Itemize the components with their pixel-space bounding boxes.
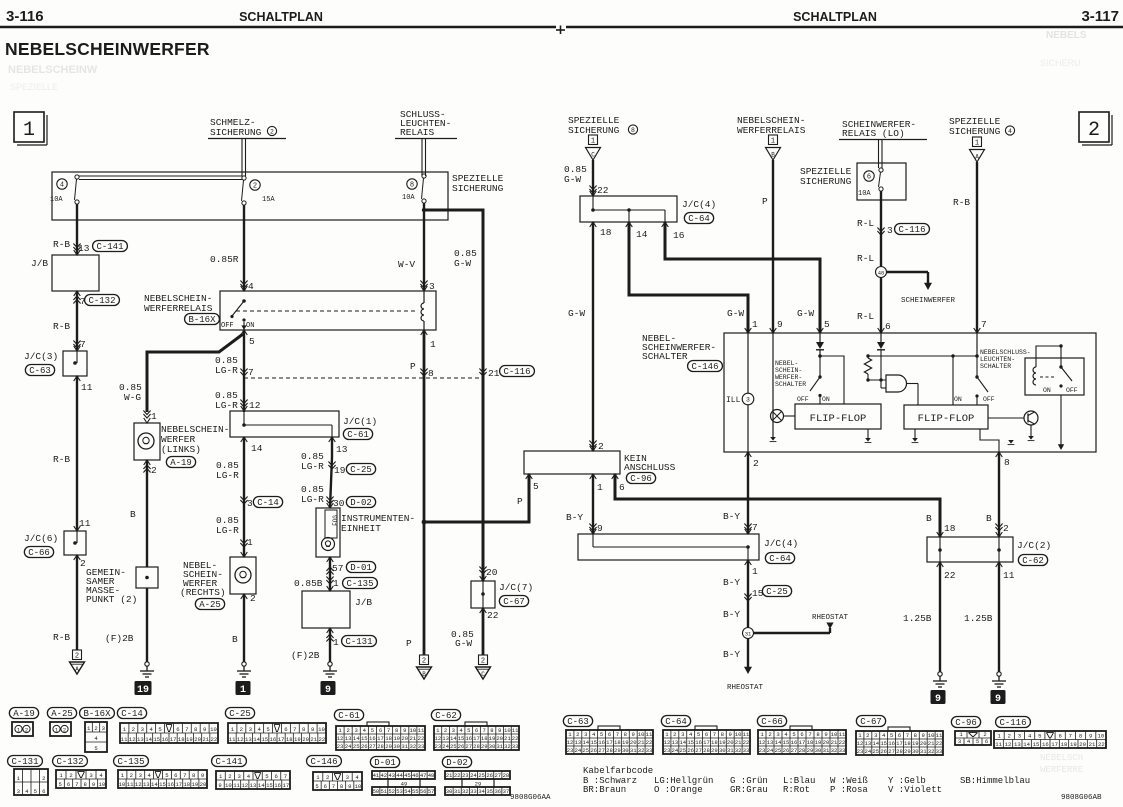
svg-text:8: 8 — [1079, 733, 1082, 740]
svg-text:BR:Braun: BR:Braun — [583, 785, 626, 795]
svg-text:5: 5 — [158, 726, 161, 733]
svg-text:7: 7 — [483, 727, 486, 734]
svg-text:20: 20 — [401, 735, 408, 742]
svg-text:32: 32 — [462, 788, 469, 795]
svg-text:OFF: OFF — [983, 396, 995, 403]
svg-text:19: 19 — [719, 739, 726, 746]
svg-text:24: 24 — [470, 772, 477, 779]
svg-text:11: 11 — [646, 731, 653, 738]
svg-text:16: 16 — [274, 782, 281, 789]
svg-text:17: 17 — [170, 736, 177, 743]
svg-text:(F)2B: (F)2B — [291, 650, 320, 661]
svg-text:6: 6 — [800, 731, 803, 738]
svg-text:22: 22 — [944, 570, 956, 581]
svg-text:C-14: C-14 — [257, 498, 279, 508]
svg-text:31: 31 — [630, 747, 637, 754]
svg-text:3: 3 — [584, 731, 587, 738]
svg-text:34: 34 — [478, 788, 485, 795]
svg-text:1: 1 — [752, 566, 758, 577]
svg-text:50: 50 — [373, 788, 380, 795]
svg-text:RELAIS (LO): RELAIS (LO) — [842, 128, 905, 139]
svg-text:1: 1 — [333, 578, 339, 589]
svg-text:14: 14 — [151, 781, 158, 788]
svg-text:SCHALTER: SCHALTER — [642, 351, 688, 362]
svg-text:LG-R: LG-R — [215, 400, 238, 411]
svg-text:24: 24 — [672, 747, 679, 754]
svg-text:EINHEIT: EINHEIT — [341, 523, 381, 534]
svg-text:19: 19 — [815, 739, 822, 746]
svg-text:15: 15 — [361, 735, 368, 742]
svg-text:26: 26 — [361, 743, 368, 750]
svg-text:10: 10 — [225, 782, 232, 789]
svg-text:9: 9 — [995, 694, 1001, 705]
svg-text:C-63: C-63 — [29, 366, 51, 376]
svg-text:11: 11 — [229, 736, 236, 743]
svg-text:WERFER-: WERFER- — [775, 374, 802, 381]
svg-text:20: 20 — [1079, 741, 1086, 748]
svg-text:NEBEL-: NEBEL- — [775, 360, 798, 367]
svg-text:1: 1 — [240, 685, 246, 696]
svg-text:11: 11 — [233, 782, 240, 789]
svg-text:24: 24 — [575, 747, 582, 754]
svg-text:3: 3 — [681, 731, 684, 738]
svg-text:5: 5 — [94, 745, 97, 752]
svg-text:A-25: A-25 — [51, 709, 73, 719]
svg-text:B: B — [232, 634, 238, 645]
svg-text:15: 15 — [458, 735, 465, 742]
svg-text:W-G: W-G — [124, 392, 141, 403]
svg-text:SB:Himmelblau: SB:Himmelblau — [960, 776, 1030, 786]
svg-text:GR:Grau: GR:Grau — [730, 785, 768, 795]
svg-text:26: 26 — [458, 743, 465, 750]
svg-text:B: B — [926, 513, 932, 524]
svg-text:3: 3 — [429, 281, 435, 292]
svg-text:ON: ON — [822, 396, 830, 403]
svg-text:9: 9 — [729, 731, 732, 738]
svg-text:8: 8 — [83, 781, 86, 788]
svg-text:14: 14 — [636, 229, 648, 240]
svg-text:3: 3 — [89, 772, 92, 779]
svg-text:C-116: C-116 — [898, 225, 925, 235]
svg-text:27: 27 — [465, 743, 472, 750]
svg-text:12: 12 — [435, 735, 442, 742]
svg-text:R:Rot: R:Rot — [783, 785, 810, 795]
svg-text:5: 5 — [697, 731, 700, 738]
svg-text:7: 7 — [713, 731, 716, 738]
svg-text:5: 5 — [34, 788, 37, 795]
svg-text:11: 11 — [79, 518, 91, 529]
svg-text:10: 10 — [210, 726, 217, 733]
svg-text:LG-R: LG-R — [215, 365, 238, 376]
svg-text:8: 8 — [395, 727, 398, 734]
svg-text:B-16X: B-16X — [188, 315, 216, 325]
svg-text:8: 8 — [816, 731, 819, 738]
svg-text:12: 12 — [337, 735, 344, 742]
svg-text:30: 30 — [719, 747, 726, 754]
svg-text:21: 21 — [1089, 741, 1096, 748]
svg-text:ON: ON — [246, 322, 254, 330]
svg-text:C-62: C-62 — [435, 711, 457, 721]
svg-text:29: 29 — [481, 743, 488, 750]
svg-text:SICHERUNG: SICHERUNG — [949, 126, 1001, 137]
svg-text:9: 9 — [935, 694, 941, 705]
svg-text:B: B — [130, 509, 136, 520]
svg-text:3: 3 — [887, 225, 893, 236]
svg-text:R-B: R-B — [953, 197, 970, 208]
svg-text:2: 2 — [481, 657, 485, 665]
svg-text:C-67: C-67 — [860, 717, 882, 727]
svg-text:OFF: OFF — [1066, 387, 1078, 394]
svg-text:20: 20 — [823, 739, 830, 746]
svg-text:3: 3 — [346, 774, 349, 781]
svg-text:12: 12 — [664, 739, 671, 746]
svg-text:A: A — [75, 666, 79, 673]
svg-text:16: 16 — [167, 781, 174, 788]
svg-text:(RECHTS): (RECHTS) — [180, 587, 226, 598]
svg-text:26: 26 — [590, 747, 597, 754]
svg-text:9: 9 — [498, 727, 501, 734]
svg-text:12: 12 — [237, 736, 244, 743]
svg-text:33: 33 — [418, 743, 425, 750]
svg-text:9808G06AA: 9808G06AA — [510, 794, 551, 802]
svg-text:WERFERRELAIS: WERFERRELAIS — [144, 303, 213, 314]
svg-text:2: 2 — [63, 727, 66, 734]
svg-text:14: 14 — [679, 739, 686, 746]
svg-text:8: 8 — [194, 726, 197, 733]
svg-text:SCHALTER: SCHALTER — [775, 381, 806, 388]
svg-text:6: 6 — [284, 726, 287, 733]
svg-text:3: 3 — [237, 773, 240, 780]
svg-text:G-W: G-W — [454, 258, 471, 269]
svg-text:LG-R: LG-R — [301, 494, 324, 505]
svg-text:13: 13 — [865, 740, 872, 747]
svg-text:5: 5 — [371, 727, 374, 734]
svg-text:29: 29 — [711, 747, 718, 754]
svg-text:9: 9 — [218, 782, 221, 789]
svg-text:12: 12 — [129, 736, 136, 743]
svg-text:31: 31 — [727, 747, 734, 754]
svg-text:3: 3 — [746, 396, 750, 403]
svg-text:27: 27 — [598, 747, 605, 754]
svg-text:J/C(4): J/C(4) — [764, 538, 798, 549]
svg-text:23: 23 — [759, 747, 766, 754]
svg-text:25: 25 — [353, 743, 360, 750]
svg-text:10: 10 — [928, 732, 935, 739]
svg-text:3: 3 — [141, 726, 144, 733]
svg-text:28: 28 — [606, 747, 613, 754]
svg-text:31: 31 — [496, 743, 503, 750]
svg-text:10: 10 — [831, 731, 838, 738]
svg-text:27: 27 — [888, 748, 895, 755]
svg-text:11: 11 — [81, 382, 93, 393]
svg-text:G-W: G-W — [797, 308, 814, 319]
svg-text:18: 18 — [600, 227, 612, 238]
svg-text:C-61: C-61 — [338, 711, 360, 721]
svg-text:6: 6 — [475, 727, 478, 734]
svg-text:C-141: C-141 — [215, 757, 242, 767]
svg-text:SICHERUNG: SICHERUNG — [800, 176, 852, 187]
svg-text:B: B — [771, 152, 775, 159]
svg-text:SCHEINWERFER: SCHEINWERFER — [901, 297, 956, 305]
svg-text:C-132: C-132 — [88, 296, 115, 306]
svg-text:4: 4 — [248, 281, 254, 292]
svg-text:21: 21 — [446, 772, 453, 779]
svg-text:7: 7 — [752, 522, 758, 533]
svg-text:22: 22 — [936, 740, 943, 747]
svg-text:J/B: J/B — [355, 597, 372, 608]
svg-text:22: 22 — [211, 736, 218, 743]
svg-text:17: 17 — [175, 781, 182, 788]
svg-text:3: 3 — [355, 727, 358, 734]
svg-text:3: 3 — [17, 788, 20, 795]
svg-text:9: 9 — [311, 726, 314, 733]
svg-text:C-116: C-116 — [999, 718, 1026, 728]
svg-text:22: 22 — [487, 610, 499, 621]
svg-text:G-W: G-W — [727, 308, 744, 319]
svg-text:10: 10 — [318, 726, 325, 733]
svg-text:2: 2 — [444, 727, 447, 734]
svg-text:B: B — [422, 671, 426, 678]
svg-text:P: P — [517, 496, 523, 507]
svg-text:31: 31 — [401, 743, 408, 750]
svg-text:16: 16 — [1042, 741, 1049, 748]
svg-text:C-64: C-64 — [688, 214, 710, 224]
svg-text:20: 20 — [302, 736, 309, 743]
svg-text:17: 17 — [896, 740, 903, 747]
svg-text:8: 8 — [721, 731, 724, 738]
svg-text:27: 27 — [494, 772, 501, 779]
svg-text:B-Y: B-Y — [723, 577, 740, 588]
svg-text:22: 22 — [646, 739, 653, 746]
svg-text:FOG: FOG — [332, 515, 339, 526]
svg-text:13: 13 — [250, 782, 257, 789]
svg-text:37: 37 — [503, 788, 510, 795]
svg-text:2: 2 — [42, 775, 45, 782]
svg-text:16: 16 — [888, 740, 895, 747]
svg-text:(F)2B: (F)2B — [105, 633, 134, 644]
svg-text:C-135: C-135 — [117, 757, 144, 767]
svg-text:20: 20 — [920, 740, 927, 747]
svg-text:C-141: C-141 — [96, 242, 123, 252]
svg-text:10A: 10A — [402, 194, 415, 202]
svg-text:8: 8 — [192, 772, 195, 779]
svg-text:30: 30 — [446, 788, 453, 795]
svg-text:17: 17 — [278, 736, 285, 743]
svg-text:2: 2 — [1088, 119, 1100, 142]
svg-text:33: 33 — [743, 747, 750, 754]
svg-text:9: 9 — [824, 731, 827, 738]
svg-text:R-L: R-L — [857, 311, 874, 322]
svg-text:C-146: C-146 — [691, 362, 718, 372]
svg-text:ON: ON — [1043, 387, 1051, 394]
svg-text:21: 21 — [410, 735, 417, 742]
svg-text:WERFERRE: WERFERRE — [1040, 765, 1083, 775]
svg-text:17: 17 — [606, 739, 613, 746]
svg-text:2: 2 — [132, 726, 135, 733]
svg-text:5: 5 — [792, 731, 795, 738]
svg-text:12: 12 — [1005, 741, 1012, 748]
svg-text:2: 2 — [25, 727, 28, 734]
svg-text:14: 14 — [1023, 741, 1030, 748]
svg-text:6: 6 — [174, 772, 177, 779]
svg-text:2: 2 — [598, 441, 604, 452]
svg-text:22: 22 — [1098, 741, 1105, 748]
svg-text:14: 14 — [450, 735, 457, 742]
svg-text:1: 1 — [752, 319, 758, 330]
svg-text:27: 27 — [695, 747, 702, 754]
svg-text:ILL: ILL — [726, 396, 741, 405]
svg-text:2: 2 — [94, 725, 97, 732]
svg-text:C-25: C-25 — [229, 709, 251, 719]
svg-text:3: 3 — [102, 725, 105, 732]
svg-text:2: 2 — [768, 731, 771, 738]
svg-text:P: P — [406, 638, 412, 649]
svg-text:30: 30 — [622, 747, 629, 754]
svg-text:B-Y: B-Y — [723, 609, 740, 620]
svg-text:10: 10 — [410, 727, 417, 734]
svg-text:FLIP-FLOP: FLIP-FLOP — [918, 413, 975, 425]
svg-text:21: 21 — [202, 736, 209, 743]
svg-text:21: 21 — [488, 368, 500, 379]
svg-text:C-132: C-132 — [56, 757, 83, 767]
svg-text:2: 2 — [240, 726, 243, 733]
svg-text:3: 3 — [874, 732, 877, 739]
svg-text:52: 52 — [388, 788, 395, 795]
svg-text:10: 10 — [638, 731, 645, 738]
svg-text:SICHERU: SICHERU — [1040, 58, 1081, 68]
svg-text:SICHERUNG: SICHERUNG — [568, 125, 620, 136]
svg-text:33: 33 — [839, 747, 846, 754]
svg-text:14: 14 — [258, 782, 265, 789]
svg-text:7: 7 — [248, 367, 254, 378]
svg-text:5: 5 — [165, 772, 168, 779]
svg-text:23: 23 — [664, 747, 671, 754]
svg-text:2: 2 — [346, 727, 349, 734]
svg-text:5: 5 — [600, 731, 603, 738]
svg-text:9: 9 — [325, 685, 331, 696]
svg-text:7: 7 — [284, 773, 287, 780]
svg-text:J/C(7): J/C(7) — [499, 582, 533, 593]
svg-text:26: 26 — [783, 747, 790, 754]
svg-text:3-117: 3-117 — [1081, 8, 1119, 25]
svg-text:30: 30 — [912, 748, 919, 755]
svg-text:16: 16 — [695, 739, 702, 746]
svg-text:8: 8 — [1004, 457, 1010, 468]
svg-text:6: 6 — [705, 731, 708, 738]
svg-text:15: 15 — [783, 739, 790, 746]
svg-text:1: 1 — [23, 119, 35, 142]
svg-text:6: 6 — [176, 726, 179, 733]
svg-text:11: 11 — [121, 736, 128, 743]
svg-text:10: 10 — [735, 731, 742, 738]
svg-text:A: A — [975, 154, 979, 161]
svg-text:5: 5 — [976, 738, 979, 745]
svg-text:SCHALTPLAN: SCHALTPLAN — [793, 10, 877, 24]
svg-text:11: 11 — [127, 781, 134, 788]
svg-text:31: 31 — [920, 748, 927, 755]
svg-text:32: 32 — [735, 747, 742, 754]
svg-text:8: 8 — [302, 726, 305, 733]
svg-text:11: 11 — [512, 727, 519, 734]
svg-text:FLIP-FLOP: FLIP-FLOP — [810, 413, 867, 425]
svg-text:22: 22 — [512, 735, 519, 742]
svg-text:19: 19 — [912, 740, 919, 747]
svg-text:31: 31 — [823, 747, 830, 754]
svg-text:23: 23 — [337, 743, 344, 750]
svg-text:B: B — [986, 513, 992, 524]
svg-text:5: 5 — [265, 773, 268, 780]
svg-text:0.85R: 0.85R — [210, 254, 239, 265]
svg-text:C-116: C-116 — [503, 367, 530, 377]
svg-text:11: 11 — [1003, 570, 1015, 581]
svg-text:14: 14 — [582, 739, 589, 746]
svg-text:9: 9 — [597, 523, 603, 534]
svg-text:28: 28 — [896, 748, 903, 755]
svg-text:18: 18 — [904, 740, 911, 747]
svg-text:15A: 15A — [262, 196, 275, 204]
svg-text:ANSCHLUSS: ANSCHLUSS — [624, 462, 676, 473]
svg-text:3: 3 — [1018, 733, 1021, 740]
svg-text:33: 33 — [470, 788, 477, 795]
svg-text:NEBELS: NEBELS — [1046, 30, 1087, 41]
svg-text:14: 14 — [353, 735, 360, 742]
svg-text:47: 47 — [420, 772, 427, 779]
svg-text:ON: ON — [954, 396, 962, 403]
svg-text:NEBELSCHEINWERFER: NEBELSCHEINWERFER — [5, 39, 210, 59]
svg-text:C-14: C-14 — [121, 709, 143, 719]
svg-text:C-25: C-25 — [350, 465, 372, 475]
svg-text:56: 56 — [420, 788, 427, 795]
svg-text:2: 2 — [151, 465, 157, 476]
svg-text:25: 25 — [775, 747, 782, 754]
svg-text:26: 26 — [486, 772, 493, 779]
svg-text:7: 7 — [293, 726, 296, 733]
svg-text:13: 13 — [442, 735, 449, 742]
svg-text:23: 23 — [857, 748, 864, 755]
svg-text:19: 19 — [334, 465, 346, 476]
svg-text:2: 2 — [422, 657, 426, 665]
svg-text:1: 1 — [597, 482, 603, 493]
svg-text:5: 5 — [1038, 733, 1041, 740]
svg-text:15: 15 — [261, 736, 268, 743]
svg-text:NEBELSCHEINW: NEBELSCHEINW — [8, 64, 98, 76]
svg-text:C-66: C-66 — [28, 548, 50, 558]
svg-text:C-66: C-66 — [761, 717, 783, 727]
svg-text:16: 16 — [270, 736, 277, 743]
svg-text:11: 11 — [936, 732, 943, 739]
svg-text:24: 24 — [767, 747, 774, 754]
svg-text:6: 6 — [67, 781, 70, 788]
svg-text:24: 24 — [442, 743, 449, 750]
svg-text:3: 3 — [958, 738, 961, 745]
svg-text:48: 48 — [428, 772, 435, 779]
svg-text:20: 20 — [486, 567, 498, 578]
svg-text:9: 9 — [201, 772, 204, 779]
svg-text:14: 14 — [872, 740, 879, 747]
svg-text:C-25: C-25 — [766, 587, 788, 597]
svg-text:NEBELSCH: NEBELSCH — [1040, 753, 1083, 763]
svg-text:3: 3 — [776, 731, 779, 738]
svg-text:11: 11 — [418, 727, 425, 734]
svg-text:3: 3 — [249, 726, 252, 733]
svg-text:9: 9 — [1089, 733, 1092, 740]
svg-text:SPEZIELLE: SPEZIELLE — [10, 82, 58, 92]
svg-text:9: 9 — [348, 783, 351, 790]
svg-text:LG-R: LG-R — [301, 461, 324, 472]
svg-text:14: 14 — [251, 443, 263, 454]
svg-text:13: 13 — [336, 444, 348, 455]
svg-text:5: 5 — [467, 727, 470, 734]
